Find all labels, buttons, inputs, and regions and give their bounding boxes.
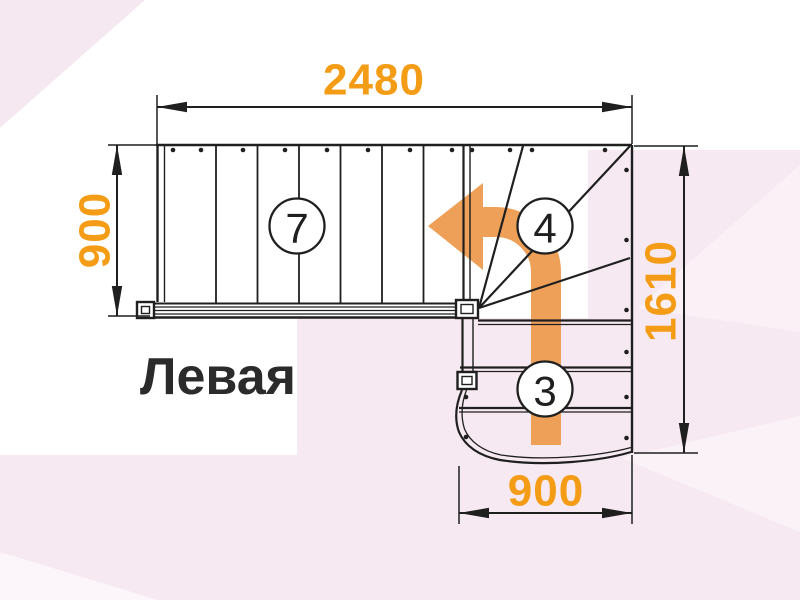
fastener-dot	[464, 395, 469, 400]
fastener-dot	[624, 308, 629, 313]
fastener-dot	[171, 148, 176, 153]
fastener-dot	[470, 148, 475, 153]
fastener-dot	[283, 148, 288, 153]
fastener-dot	[366, 148, 371, 153]
fastener-dot	[408, 148, 413, 153]
newel-post-inner	[142, 307, 150, 314]
fastener-dot	[464, 435, 469, 440]
step-count-lower-flight: 3	[533, 368, 556, 415]
orientation-label: Левая	[140, 348, 296, 406]
dimension-value-bottom: 900	[508, 467, 584, 516]
dimension-value-top: 2480	[323, 56, 425, 105]
fastener-dot	[603, 148, 608, 153]
dimension-value-right: 1610	[637, 240, 686, 342]
fastener-dot	[450, 148, 455, 153]
fastener-dot	[199, 148, 204, 153]
stair-plan-page: 7 4 3 2480 900 1610 900 Левая	[0, 0, 800, 600]
fastener-dot	[530, 148, 535, 153]
fastener-dot	[624, 436, 629, 441]
dimension-value-left: 900	[71, 192, 120, 268]
stair-plan-diagram: 7 4 3 2480 900 1610 900 Левая	[0, 0, 800, 600]
step-count-main-flight: 7	[285, 205, 308, 252]
fastener-dot	[325, 148, 330, 153]
corner-post-inner	[461, 305, 473, 314]
fastener-dot	[241, 148, 246, 153]
fastener-dot	[624, 395, 629, 400]
fastener-dot	[624, 168, 629, 173]
fastener-dot	[624, 350, 629, 355]
fastener-dot	[624, 238, 629, 243]
newel-post-inner	[462, 377, 472, 385]
step-count-winder: 4	[533, 205, 556, 252]
fastener-dot	[508, 148, 513, 153]
